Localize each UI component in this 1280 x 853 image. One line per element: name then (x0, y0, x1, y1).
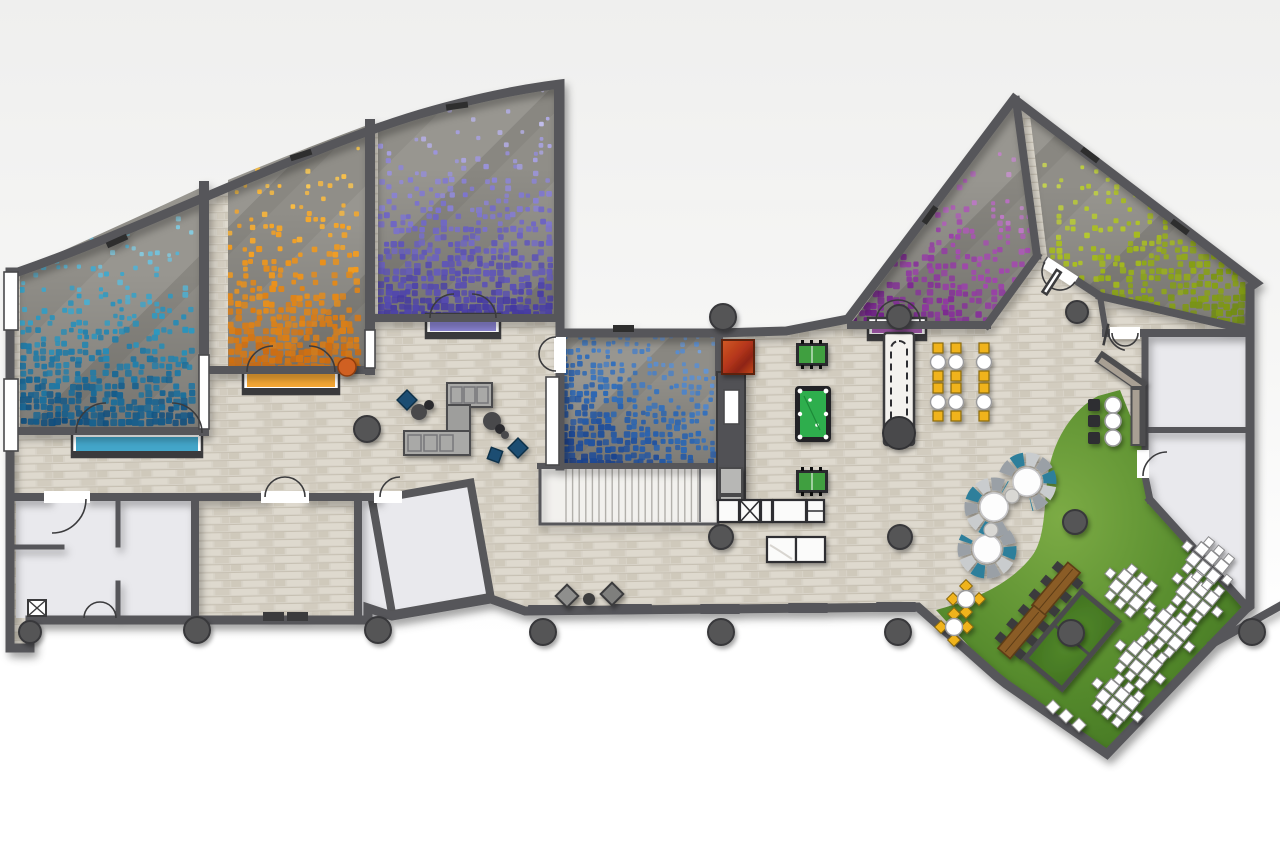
column (1063, 510, 1087, 534)
round-pouf (883, 417, 915, 449)
foosball-table (796, 467, 828, 496)
column (888, 525, 912, 549)
bar-stools (1088, 397, 1121, 446)
column (887, 305, 911, 329)
staircase (540, 467, 718, 524)
hightop-table (949, 343, 964, 381)
shaft-box (28, 600, 46, 616)
sidelight (199, 355, 209, 429)
hightop-table (931, 343, 946, 381)
window (4, 379, 18, 451)
hightop-table (931, 383, 946, 421)
column (1239, 619, 1265, 645)
column (354, 416, 380, 442)
column (1066, 301, 1088, 323)
booth-table (980, 493, 1008, 521)
column (885, 619, 911, 645)
column (1058, 620, 1084, 646)
sidelight (365, 330, 375, 368)
blue-carpet-room (561, 333, 719, 467)
niche (724, 390, 739, 424)
hightop-table (977, 383, 992, 421)
white-room-upper-right (1145, 333, 1250, 430)
column (530, 619, 556, 645)
shuffleboard-table (883, 333, 915, 449)
whiteboard-panel (546, 377, 559, 465)
prep-table (796, 537, 825, 562)
column (708, 619, 734, 645)
hightop-table (977, 343, 992, 381)
cyan-carpet-room (19, 188, 200, 431)
hightop-table (949, 383, 964, 421)
column (19, 621, 41, 643)
orange-pouf (338, 358, 356, 376)
red-lounge-sofa (722, 340, 754, 374)
floor-plan-canvas (0, 0, 1280, 853)
column (184, 617, 210, 643)
pool-table (795, 386, 831, 442)
booth-table (973, 535, 1001, 563)
floor-plan-stage (0, 0, 1280, 853)
column (710, 304, 736, 330)
window (4, 272, 18, 330)
foosball-table (796, 340, 828, 369)
column (365, 617, 391, 643)
column (709, 525, 733, 549)
